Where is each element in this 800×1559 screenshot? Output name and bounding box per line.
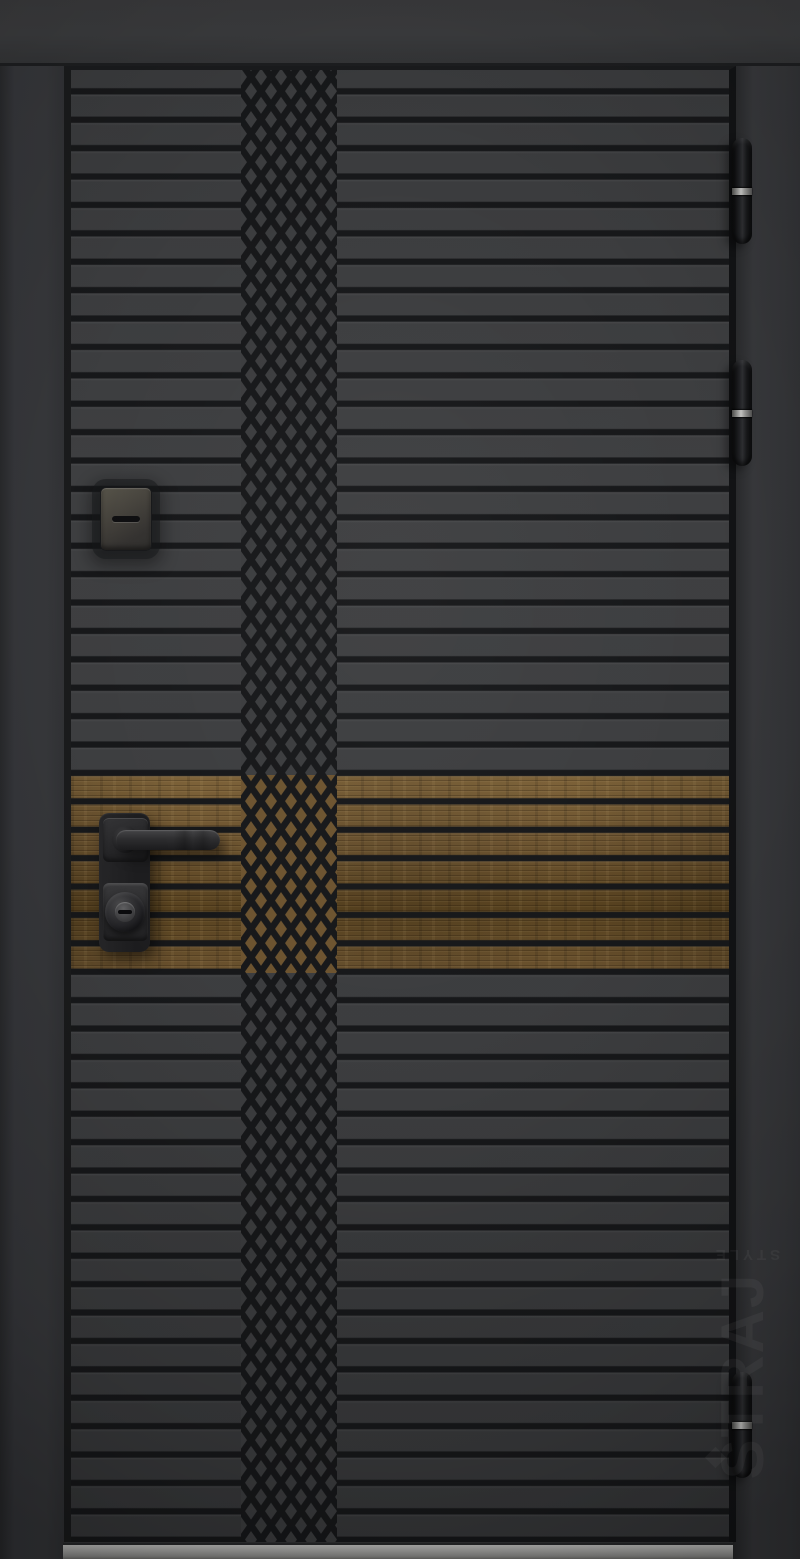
hinge-ring: [732, 410, 752, 417]
wall-lintel: [0, 0, 800, 66]
peephole-slot: [112, 516, 140, 522]
lever-handle: [116, 830, 220, 850]
hinge-middle: [732, 360, 752, 466]
hinge-ring: [732, 188, 752, 195]
keyhole: [115, 902, 135, 922]
brand-style-text: STYLE: [700, 1243, 792, 1263]
hinge-top: [732, 138, 752, 244]
door-product-photo: STYLE STRAJ: [0, 0, 800, 1559]
threshold-strip: [63, 1543, 733, 1559]
horizontal-groove-texture: [71, 70, 729, 1542]
diamond-lattice-pattern: [241, 70, 337, 1542]
wall-left: [0, 66, 66, 1559]
door-leaf: [64, 66, 736, 1542]
handle-lock-unit: [99, 813, 299, 952]
keyhole-slot: [118, 910, 132, 914]
peephole-cover: [100, 487, 152, 551]
